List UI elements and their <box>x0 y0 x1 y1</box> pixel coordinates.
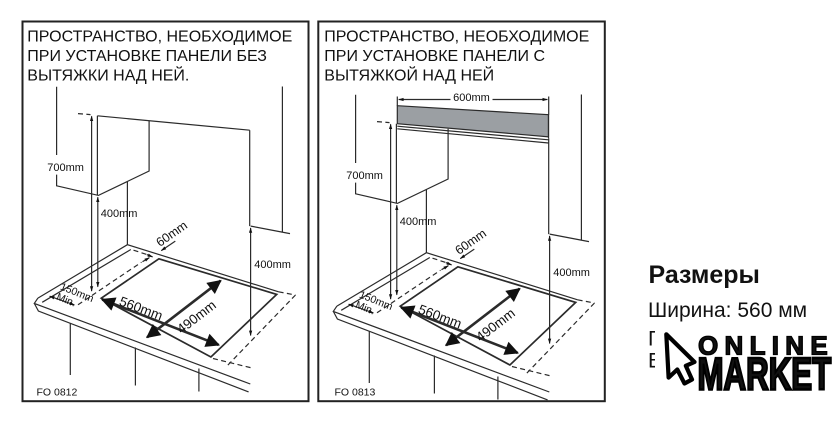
svg-text:ПРИ УСТАНОВКЕ ПАНЕЛИ С: ПРИ УСТАНОВКЕ ПАНЕЛИ С <box>324 48 545 65</box>
svg-text:FO 0812: FO 0812 <box>37 387 78 399</box>
svg-text:Ширина: 560 мм: Ширина: 560 мм <box>648 299 807 322</box>
svg-text:ПРОСТРАНСТВО, НЕОБХОДИМОЕ: ПРОСТРАНСТВО, НЕОБХОДИМОЕ <box>324 28 589 45</box>
svg-text:Размеры: Размеры <box>649 261 760 289</box>
svg-text:FO 0813: FO 0813 <box>335 387 376 399</box>
svg-text:ВЫТЯЖКОЙ НАД НЕЙ: ВЫТЯЖКОЙ НАД НЕЙ <box>324 65 494 84</box>
svg-text:ПРОСТРАНСТВО, НЕОБХОДИМОЕ: ПРОСТРАНСТВО, НЕОБХОДИМОЕ <box>27 28 292 45</box>
svg-text:MARKET: MARKET <box>698 350 832 400</box>
svg-text:ВЫТЯЖКИ НАД НЕЙ.: ВЫТЯЖКИ НАД НЕЙ. <box>27 65 189 84</box>
svg-text:ПРИ УСТАНОВКЕ ПАНЕЛИ БЕЗ: ПРИ УСТАНОВКЕ ПАНЕЛИ БЕЗ <box>27 48 267 65</box>
svg-text:600mm: 600mm <box>453 92 490 104</box>
